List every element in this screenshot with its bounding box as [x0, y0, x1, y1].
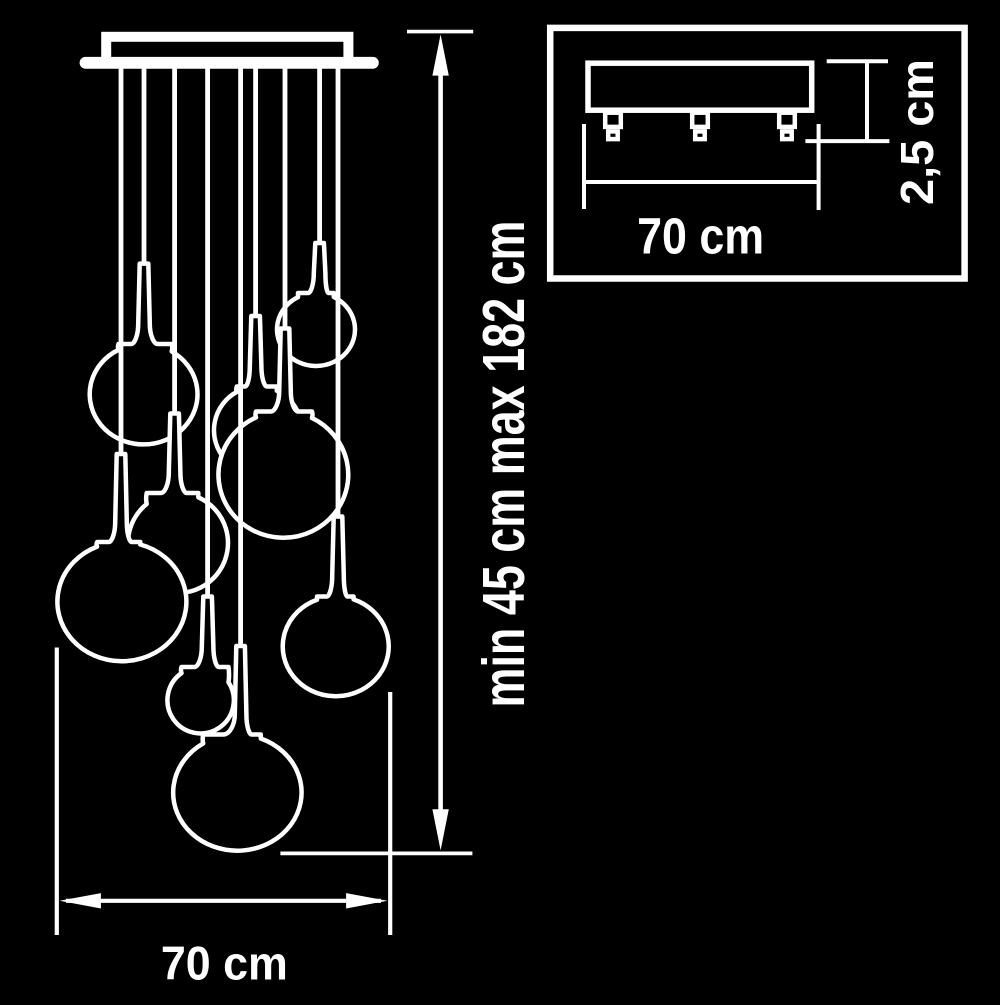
svg-text:70 cm: 70 cm — [161, 937, 288, 990]
svg-text:min 45 cm max 182 cm: min 45 cm max 182 cm — [471, 221, 537, 708]
svg-text:70 cm: 70 cm — [637, 207, 764, 264]
svg-text:2,5 cm: 2,5 cm — [891, 59, 943, 205]
